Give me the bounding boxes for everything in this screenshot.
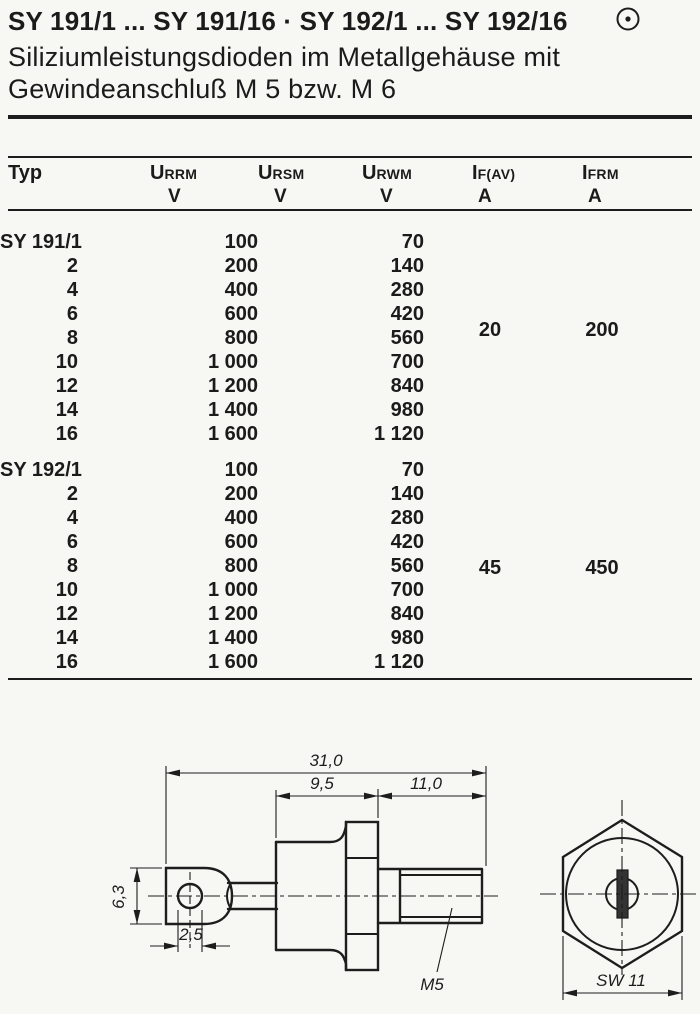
- table-row: 141 400980: [0, 626, 700, 650]
- table-row: SY 192/110070: [0, 458, 700, 482]
- column-header-urwm: URWM: [362, 162, 412, 185]
- front-view-drawing: SW 11: [540, 800, 700, 1000]
- cell-urwm: 70: [310, 458, 424, 482]
- dim-hole-diameter: 2,5: [178, 925, 203, 944]
- cell-urrm: 1 600: [150, 650, 258, 674]
- cell-urwm: 420: [310, 302, 424, 326]
- table-row: 6600420: [0, 530, 700, 554]
- cell-typ: 4: [0, 278, 78, 302]
- cell-urrm: 1 600: [150, 422, 258, 446]
- cell-urwm: 560: [310, 326, 424, 350]
- cell-typ: 2: [0, 254, 78, 278]
- cell-urwm: 840: [310, 374, 424, 398]
- cell-urwm: 70: [310, 230, 424, 254]
- group1-ifav-value: 20: [462, 318, 518, 342]
- cell-urrm: 600: [150, 302, 258, 326]
- column-label: Typ: [8, 162, 42, 184]
- table-row: SY 191/110070: [0, 230, 700, 254]
- cell-typ: 10: [0, 350, 78, 374]
- column-label: U: [258, 162, 272, 184]
- table-row: 121 200840: [0, 374, 700, 398]
- unit-urwm: V: [380, 186, 393, 208]
- unit-ifrm: A: [588, 186, 602, 208]
- cell-typ: 10: [0, 578, 78, 602]
- cell-urrm: 1 000: [150, 578, 258, 602]
- table-row: 161 6001 120: [0, 422, 700, 446]
- cell-urrm: 1 200: [150, 374, 258, 398]
- table-row: 121 200840: [0, 602, 700, 626]
- cell-typ: 14: [0, 398, 78, 422]
- wrench-size-label: SW 11: [596, 971, 646, 990]
- table-row: 141 400980: [0, 398, 700, 422]
- thread-label: M5: [420, 975, 444, 994]
- side-view-drawing: 31,0 9,5 11,0 6,3 2,5: [109, 751, 498, 994]
- column-label: U: [362, 162, 376, 184]
- column-label-sub: RRM: [164, 166, 197, 182]
- table-row: 2200140: [0, 482, 700, 506]
- column-header-ifrm: IFRM: [582, 162, 619, 185]
- cell-urrm: 200: [150, 482, 258, 506]
- column-label-sub: RSM: [272, 166, 304, 182]
- cell-urrm: 600: [150, 530, 258, 554]
- subtitle-line-2: Gewindeanschluß M 5 bzw. M 6: [8, 74, 396, 105]
- cell-typ: 6: [0, 530, 78, 554]
- cell-urrm: 400: [150, 506, 258, 530]
- cell-urrm: 1 400: [150, 626, 258, 650]
- cell-typ: 8: [0, 326, 78, 350]
- table-row: 101 000700: [0, 350, 700, 374]
- cell-urwm: 980: [310, 398, 424, 422]
- cell-urrm: 400: [150, 278, 258, 302]
- table-row: 4400280: [0, 506, 700, 530]
- cell-urwm: 560: [310, 554, 424, 578]
- unit-ifav: A: [478, 186, 492, 208]
- cell-typ: 12: [0, 602, 78, 626]
- cell-typ: 16: [0, 650, 78, 674]
- cell-urwm: 700: [310, 350, 424, 374]
- cell-urrm: 1 200: [150, 602, 258, 626]
- cell-typ: 16: [0, 422, 78, 446]
- column-label-sub: F(AV): [478, 166, 516, 182]
- cell-typ: 12: [0, 374, 78, 398]
- cell-urrm: 100: [150, 458, 258, 482]
- cell-urwm: 1 120: [310, 650, 424, 674]
- cell-typ: 14: [0, 626, 78, 650]
- package-outline-drawing: 31,0 9,5 11,0 6,3 2,5: [0, 730, 700, 1014]
- cell-urwm: 280: [310, 506, 424, 530]
- dim-stud-length: 11,0: [410, 774, 442, 793]
- cell-urwm: 840: [310, 602, 424, 626]
- dim-overall-length: 31,0: [309, 751, 343, 770]
- column-label-sub: FRM: [588, 166, 619, 182]
- circled-dot-icon: [615, 6, 641, 32]
- body-bottom: [276, 950, 346, 970]
- subtitle-line-1: Siliziumleistungsdioden im Metallgehäuse…: [8, 42, 560, 73]
- cell-urwm: 1 120: [310, 422, 424, 446]
- cell-urwm: 700: [310, 578, 424, 602]
- cell-urrm: 800: [150, 326, 258, 350]
- group2-ifrm-value: 450: [570, 556, 634, 580]
- body-top: [276, 822, 346, 842]
- column-label-sub: RWM: [376, 166, 412, 182]
- cell-typ: SY 191/1: [0, 230, 78, 254]
- cell-typ: 4: [0, 506, 78, 530]
- cell-urwm: 420: [310, 530, 424, 554]
- cell-typ: 8: [0, 554, 78, 578]
- dim-body-length: 9,5: [310, 774, 334, 793]
- cell-urrm: 800: [150, 554, 258, 578]
- table-row: 4400280: [0, 278, 700, 302]
- rule-under-subtitle: [8, 115, 692, 119]
- cell-typ: 6: [0, 302, 78, 326]
- table-top-rule: [8, 156, 692, 158]
- table-row: 161 6001 120: [0, 650, 700, 674]
- cell-urwm: 140: [310, 482, 424, 506]
- cell-urrm: 1 000: [150, 350, 258, 374]
- page-title: SY 191/1 ... SY 191/16 · SY 192/1 ... SY…: [8, 6, 568, 37]
- cell-typ: 2: [0, 482, 78, 506]
- column-header-urrm: URRM: [150, 162, 197, 185]
- column-header-ifav: IF(AV): [472, 162, 515, 185]
- cell-urwm: 980: [310, 626, 424, 650]
- group2-ifav-value: 45: [462, 556, 518, 580]
- group1-ifrm-value: 200: [570, 318, 634, 342]
- table-bottom-rule: [8, 678, 692, 680]
- cell-urrm: 1 400: [150, 398, 258, 422]
- table-row: 2200140: [0, 254, 700, 278]
- column-label: U: [150, 162, 164, 184]
- header-bottom-rule: [8, 209, 692, 211]
- dim-tab-height: 6,3: [109, 885, 128, 909]
- cell-typ: SY 192/1: [0, 458, 78, 482]
- table-row: 101 000700: [0, 578, 700, 602]
- unit-urrm: V: [168, 186, 181, 208]
- column-header-typ: Typ: [8, 162, 42, 185]
- datasheet-page: SY 191/1 ... SY 191/16 · SY 192/1 ... SY…: [0, 0, 700, 1014]
- column-header-ursm: URSM: [258, 162, 304, 185]
- cell-urrm: 200: [150, 254, 258, 278]
- cell-urwm: 280: [310, 278, 424, 302]
- cell-urrm: 100: [150, 230, 258, 254]
- cell-urwm: 140: [310, 254, 424, 278]
- unit-ursm: V: [274, 186, 287, 208]
